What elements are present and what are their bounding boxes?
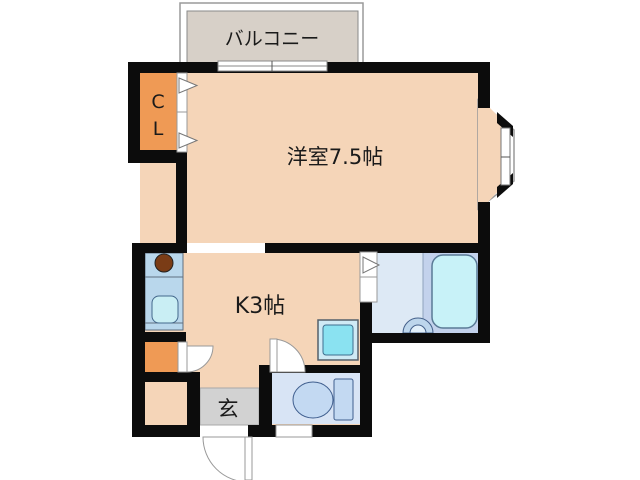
stove-burner-icon [155, 254, 173, 272]
room-kitchen-opening [187, 243, 265, 253]
toilet-window [276, 425, 312, 437]
wall-above-storage [132, 332, 186, 342]
kitchen-sink [152, 296, 178, 323]
wall-right-upper [478, 62, 490, 108]
wall-bath-bottom [360, 333, 490, 343]
washing-machine [323, 325, 353, 355]
floorplan-canvas: バルコニー C L 洋室7.5帖 K3帖 玄 [0, 0, 640, 480]
wall-alcove-right [187, 372, 200, 437]
toilet-door-leaf [270, 339, 277, 372]
toilet-bowl [293, 382, 333, 418]
closet-label-line2: L [153, 118, 164, 140]
alcove-floor [145, 382, 187, 425]
storage-box-floor [145, 342, 178, 372]
entrance-label: 玄 [218, 397, 239, 421]
wall-right-lower [478, 202, 490, 343]
wall-room-left [176, 150, 187, 253]
wall-mid-band [132, 243, 490, 253]
balcony-label: バルコニー [225, 28, 320, 50]
storage-door-leaf [178, 342, 187, 372]
living-room-label: 洋室7.5帖 [287, 145, 383, 169]
closet-label-line1: C [151, 91, 164, 113]
floorplan-page: バルコニー C L 洋室7.5帖 K3帖 玄 [0, 0, 640, 480]
entrance-door-leaf [245, 437, 252, 480]
kitchen-label: K3帖 [235, 294, 285, 319]
toilet-tank [334, 379, 353, 420]
bathtub [432, 255, 477, 328]
wall-left-upper [128, 62, 140, 163]
